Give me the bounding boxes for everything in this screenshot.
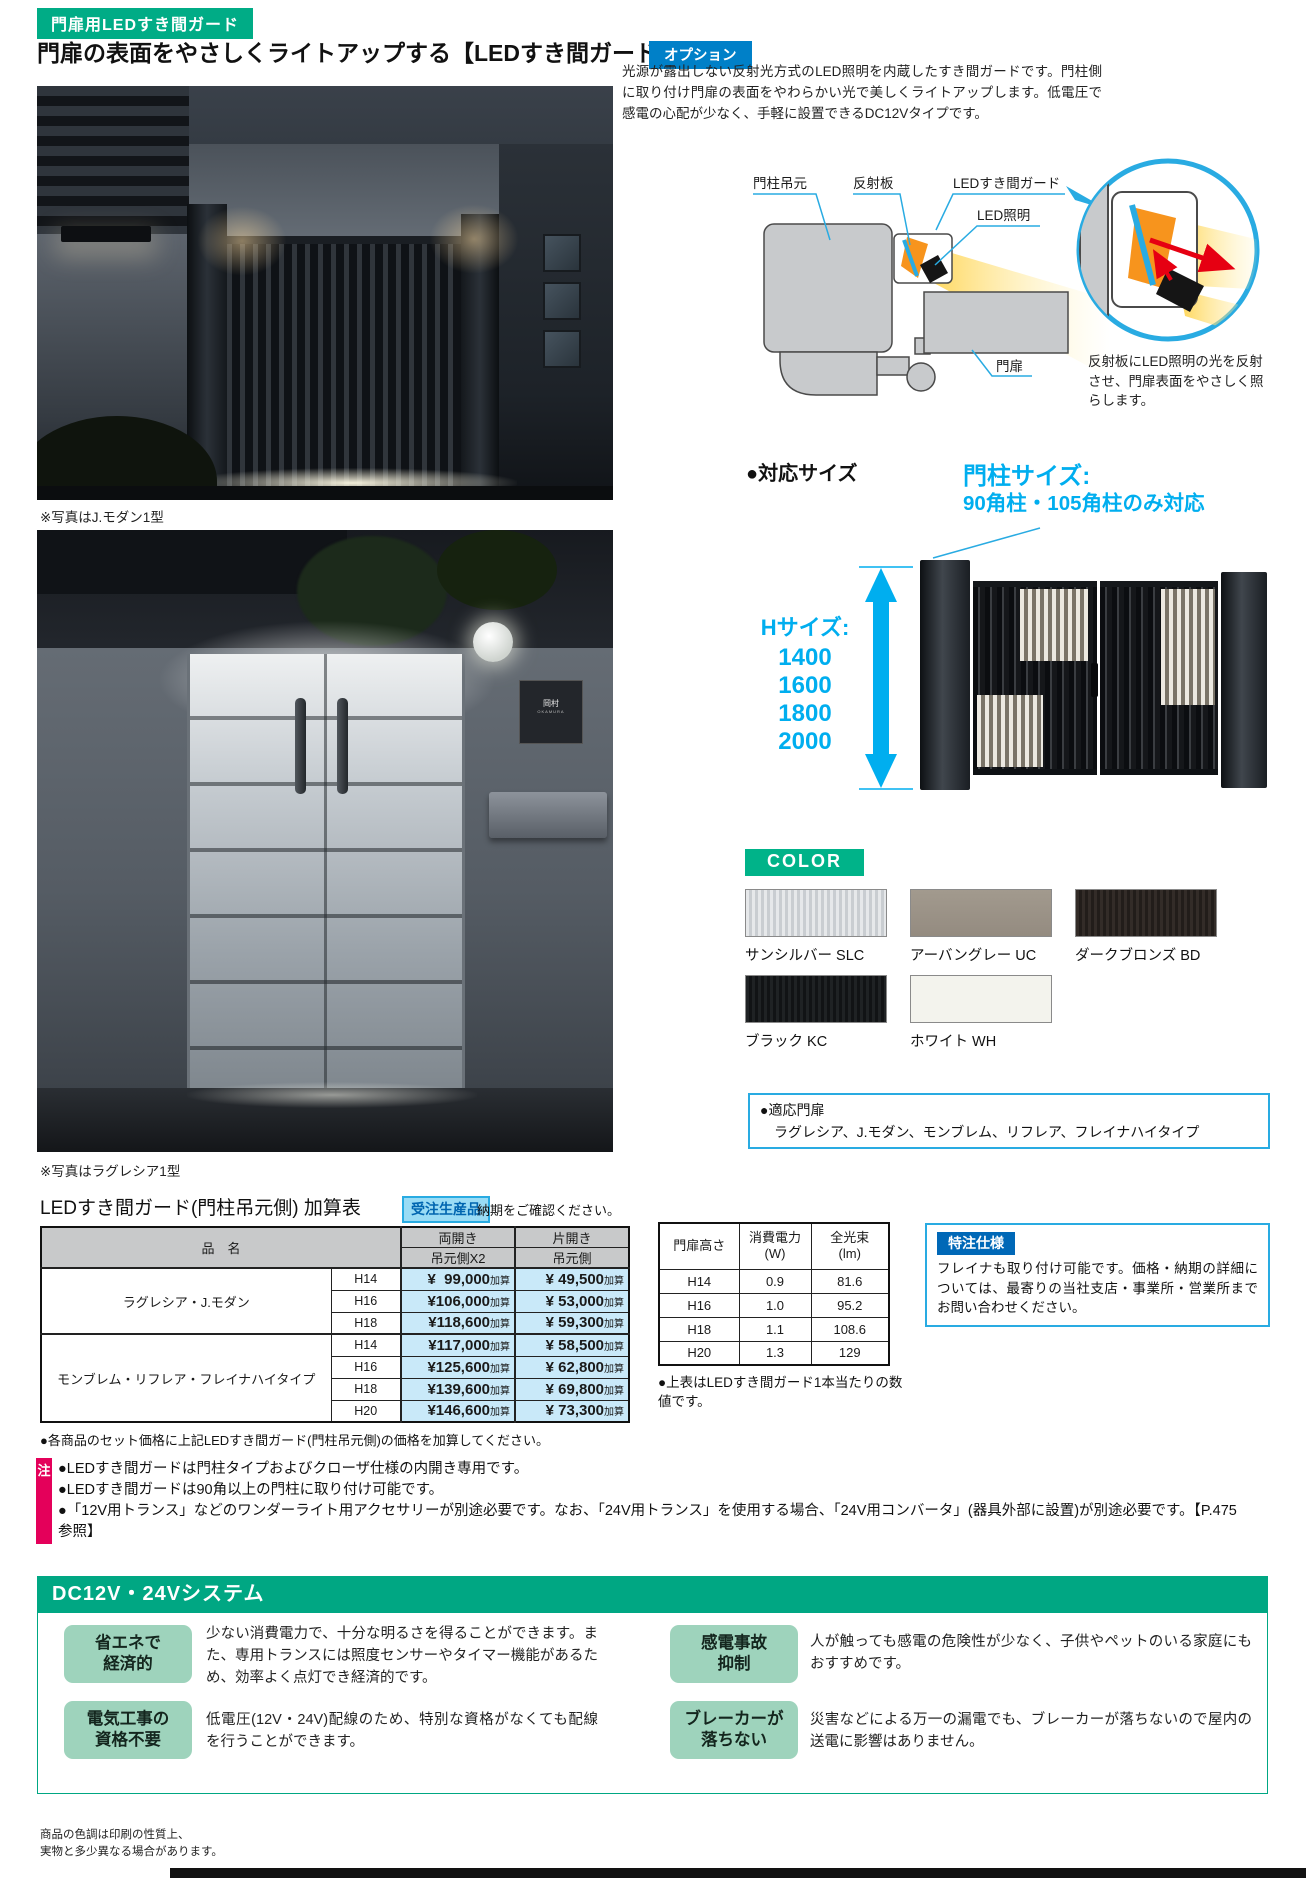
label-gate-post: 門柱吊元 <box>753 176 807 191</box>
swatch-label: ホワイト WH <box>910 1030 1052 1051</box>
col-single-header: 片開き <box>515 1227 629 1248</box>
feature-text-eco: 少ない消費電力で、十分な明るさを得ることができます。また、専用トランスには照度セ… <box>206 1623 598 1689</box>
spec-height: H14 <box>659 1269 739 1293</box>
color-section-badge: COLOR <box>745 849 864 876</box>
label-door: 門扉 <box>996 359 1023 374</box>
custom-spec-text: フレイナも取り付け可能です。価格・納期の詳細については、最寄りの当社支店・事業所… <box>937 1259 1258 1318</box>
price-cell: ¥117,000加算 <box>401 1334 515 1356</box>
gate-size-illustration <box>915 545 1273 800</box>
label-guard: LEDすき間ガード <box>953 176 1060 191</box>
price-suffix: 加算 <box>604 1342 624 1353</box>
photo-glass-block <box>543 330 581 368</box>
price-value: ¥ 53,000 <box>546 1293 604 1310</box>
spec-flux: 129 <box>811 1341 889 1365</box>
photo-under-gate-glow <box>187 1082 477 1108</box>
feature-text-breaker: 災害などによる万一の漏電でも、ブレーカーが落ちないので屋内の送電に影響はありませ… <box>810 1709 1252 1753</box>
intro-text: 光源が露出しない反射光方式のLED照明を内蔵したすき間ガードです。門柱側に取り付… <box>622 62 1102 125</box>
h-size-value: 1800 <box>736 700 874 728</box>
h-size-list: Hサイズ: 1400 1600 1800 2000 <box>736 610 874 756</box>
height-dimension-arrow <box>855 558 917 798</box>
color-swatches: サンシルバー SLC アーバングレー UC ダークブロンズ BD ブラック KC… <box>745 887 1275 1057</box>
swatch-label: サンシルバー SLC <box>745 944 887 965</box>
photo-warm-glow <box>429 204 519 274</box>
photo-round-lamp <box>473 622 513 662</box>
spec-height: H18 <box>659 1317 739 1341</box>
photo-glass-block <box>543 282 581 320</box>
nameplate-name: 岡村 <box>543 699 559 708</box>
photo-wall-lamp <box>61 226 151 242</box>
spec-col-height: 門扉高さ <box>659 1223 739 1269</box>
spec-table-note: ●上表はLEDすき間ガード1本当たりの数値です。 <box>658 1374 906 1412</box>
swatch-black: ブラック KC <box>745 975 887 1051</box>
height-cell: H16 <box>331 1290 401 1312</box>
height-cell: H18 <box>331 1312 401 1334</box>
swatch-color <box>910 889 1052 937</box>
price-table: 品 名 両開き 片開き 吊元側X2 吊元側 ラグレシア・J.モダン H14 ¥ … <box>40 1226 630 1423</box>
nameplate-roman: OKAMURA <box>520 709 582 714</box>
delivery-note: 納期をご確認ください。 <box>477 1200 620 1219</box>
illus-post-right <box>1221 572 1267 788</box>
price-suffix: 加算 <box>604 1298 624 1309</box>
photo-right-wall <box>499 144 613 500</box>
illus-light-block <box>1020 589 1088 661</box>
post-size-line1: 門柱サイズ: <box>963 463 1205 492</box>
price-suffix: 加算 <box>490 1319 510 1330</box>
price-cell: ¥139,600加算 <box>401 1378 515 1400</box>
dc-system-title: DC12V・24Vシステム <box>38 1577 1267 1613</box>
footer-disclaimer: 商品の色調は印刷の性質上、 実物と多少異なる場合があります。 <box>40 1827 223 1862</box>
price-value: ¥ 49,500 <box>546 1271 604 1288</box>
height-cell: H20 <box>331 1400 401 1422</box>
col-double-subheader: 吊元側X2 <box>401 1248 515 1269</box>
price-suffix: 加算 <box>604 1364 624 1375</box>
swatch-label: ブラック KC <box>745 1030 887 1051</box>
price-cell: ¥ 99,000加算 <box>401 1268 515 1290</box>
product-group-name: ラグレシア・J.モダン <box>41 1268 331 1334</box>
applicable-gates-box: ●適応門扉 ラグレシア、J.モダン、モンブレム、リフレア、フレイナハイタイプ <box>748 1093 1270 1149</box>
spec-table: 門扉高さ 消費電力(W) 全光束(lm) H14 0.9 81.6 H16 1.… <box>658 1222 890 1366</box>
price-cell: ¥ 53,000加算 <box>515 1290 629 1312</box>
page-title: 門扉の表面をやさしくライトアップする【LEDすき間ガード】 <box>37 34 681 68</box>
price-cell: ¥146,600加算 <box>401 1400 515 1422</box>
photo-nameplate: 岡村 OKAMURA <box>519 680 583 744</box>
price-cell: ¥ 49,500加算 <box>515 1268 629 1290</box>
gate-post-shape <box>764 224 892 352</box>
spec-height: H16 <box>659 1293 739 1317</box>
photo-gate-split <box>324 654 327 1110</box>
swatch-label: ダークブロンズ BD <box>1075 944 1217 965</box>
price-cell: ¥125,600加算 <box>401 1356 515 1378</box>
photo-mailbox <box>489 792 607 838</box>
price-value: ¥146,600 <box>427 1402 490 1419</box>
price-cell: ¥ 62,800加算 <box>515 1356 629 1378</box>
spec-power: 1.1 <box>739 1317 811 1341</box>
price-value: ¥ 62,800 <box>546 1359 604 1376</box>
applicable-list: ラグレシア、J.モダン、モンブレム、リフレア、フレイナハイタイプ <box>760 1122 1258 1142</box>
price-value: ¥ 59,300 <box>546 1314 604 1331</box>
height-cell: H14 <box>331 1268 401 1290</box>
height-cell: H16 <box>331 1356 401 1378</box>
swatch-sunsilver: サンシルバー SLC <box>745 889 887 965</box>
photo1-caption: ※写真はJ.モダン1型 <box>40 506 164 526</box>
spec-height: H20 <box>659 1341 739 1365</box>
h-size-value: 1600 <box>736 672 874 700</box>
price-suffix: 加算 <box>490 1276 510 1287</box>
swatch-color <box>745 975 887 1023</box>
footer-line2: 実物と多少異なる場合があります。 <box>40 1844 223 1861</box>
spec-flux: 95.2 <box>811 1293 889 1317</box>
label-led: LED照明 <box>977 208 1030 223</box>
spec-col-flux: 全光束(lm) <box>811 1223 889 1269</box>
feature-badge-eco: 省エネで経済的 <box>64 1625 192 1683</box>
photo-gate-handle <box>295 698 306 794</box>
price-suffix: 加算 <box>604 1386 624 1397</box>
photo-louver-fence <box>37 86 189 234</box>
col-product-header: 品 名 <box>41 1227 401 1268</box>
feature-badge-breaker: ブレーカーが落ちない <box>670 1701 798 1759</box>
custom-spec-badge: 特注仕様 <box>937 1232 1015 1255</box>
price-value: ¥ 99,000 <box>427 1271 490 1288</box>
swatch-color <box>1075 889 1217 937</box>
feature-badge-shock: 感電事故抑制 <box>670 1625 798 1683</box>
price-suffix: 加算 <box>490 1342 510 1353</box>
photo-foliage <box>437 530 557 610</box>
price-table-title: LEDすき間ガード(門柱吊元側) 加算表 <box>40 1193 361 1220</box>
swatch-color <box>910 975 1052 1023</box>
swatch-urbangray: アーバングレー UC <box>910 889 1052 965</box>
price-suffix: 加算 <box>604 1276 624 1287</box>
price-cell: ¥118,600加算 <box>401 1312 515 1334</box>
feature-text-shock: 人が触っても感電の危険性が少なく、子供やペットのいる家庭にもおすすめです。 <box>810 1631 1252 1675</box>
catalog-page: 門扉用LEDすき間ガード 門扉の表面をやさしくライトアップする【LEDすき間ガー… <box>0 0 1306 1878</box>
hinge-knuckle-shape <box>907 363 935 391</box>
note-item: ●LEDすき間ガードは門柱タイプおよびクローザ仕様の内開き専用です。 <box>58 1459 1248 1480</box>
swatch-label: アーバングレー UC <box>910 944 1052 965</box>
spec-power: 1.3 <box>739 1341 811 1365</box>
price-cell: ¥ 59,300加算 <box>515 1312 629 1334</box>
spec-col-power: 消費電力(W) <box>739 1223 811 1269</box>
dc-system-section: DC12V・24Vシステム 省エネで経済的 少ない消費電力で、十分な明るさを得る… <box>37 1576 1268 1794</box>
note-item: ●LEDすき間ガードは90角以上の門柱に取り付け可能です。 <box>58 1480 1248 1501</box>
price-cell: ¥ 69,800加算 <box>515 1378 629 1400</box>
post-size-note: 門柱サイズ: 90角柱・105角柱のみ対応 <box>963 463 1205 516</box>
page-bottom-bar <box>170 1868 1306 1878</box>
custom-spec-box: 特注仕様 フレイナも取り付け可能です。価格・納期の詳細については、最寄りの当社支… <box>925 1223 1270 1327</box>
illus-gate-handle <box>1091 663 1098 697</box>
col-double-header: 両開き <box>401 1227 515 1248</box>
h-size-value: 1400 <box>736 644 874 672</box>
feature-text-nolicense: 低電圧(12V・24V)配線のため、特別な資格がなくても配線を行うことができます… <box>206 1709 598 1753</box>
price-cell: ¥ 58,500加算 <box>515 1334 629 1356</box>
applicable-heading: ●適応門扉 <box>760 1100 1258 1120</box>
hinge-arm-shape <box>877 357 909 375</box>
note-badge: 注 <box>36 1458 52 1544</box>
height-cell: H18 <box>331 1378 401 1400</box>
swatch-color <box>745 889 887 937</box>
price-value: ¥106,000 <box>427 1293 490 1310</box>
spec-flux: 81.6 <box>811 1269 889 1293</box>
feature-badge-nolicense: 電気工事の資格不要 <box>64 1701 192 1759</box>
note-list: ●LEDすき間ガードは門柱タイプおよびクローザ仕様の内開き専用です。 ●LEDす… <box>58 1459 1248 1543</box>
swatch-darkbronze: ダークブロンズ BD <box>1075 889 1217 965</box>
diagram-caption: 反射板にLED照明の光を反射させ、門扉表面をやさしく照らします。 <box>1088 352 1274 411</box>
price-cell: ¥106,000加算 <box>401 1290 515 1312</box>
post-size-line2: 90角柱・105角柱のみ対応 <box>963 492 1205 517</box>
h-size-value: 2000 <box>736 728 874 756</box>
price-value: ¥125,600 <box>427 1359 490 1376</box>
gate-door-shape <box>924 292 1068 353</box>
swatch-white: ホワイト WH <box>910 975 1052 1051</box>
spec-flux: 108.6 <box>811 1317 889 1341</box>
spec-power: 0.9 <box>739 1269 811 1293</box>
price-suffix: 加算 <box>490 1364 510 1375</box>
price-value: ¥ 58,500 <box>546 1337 604 1354</box>
price-suffix: 加算 <box>490 1386 510 1397</box>
price-value: ¥118,600 <box>428 1314 490 1331</box>
h-size-label: Hサイズ: <box>736 610 874 642</box>
price-value: ¥139,600 <box>427 1381 490 1398</box>
note-item: ●「12V用トランス」などのワンダーライト用アクセサリーが別途必要です。なお、「… <box>58 1501 1248 1543</box>
illus-post-left <box>920 560 970 790</box>
illus-light-block <box>977 695 1043 767</box>
label-reflector: 反射板 <box>853 176 894 191</box>
col-single-subheader: 吊元側 <box>515 1248 629 1269</box>
spec-power: 1.0 <box>739 1293 811 1317</box>
hinge-body-shape <box>780 352 877 395</box>
price-value: ¥ 69,800 <box>546 1381 604 1398</box>
price-table-note: ●各商品のセット価格に上記LEDすき間ガード(門柱吊元側)の価格を加算してくださ… <box>40 1430 549 1449</box>
product-group-name: モンブレム・リフレア・フレイナハイタイプ <box>41 1334 331 1422</box>
price-suffix: 加算 <box>604 1407 624 1418</box>
night-photo-jmodern <box>37 86 613 500</box>
photo-ground <box>37 486 613 500</box>
night-photo-lagrecia: 岡村 OKAMURA <box>37 530 613 1152</box>
photo-warm-glow <box>197 206 287 276</box>
size-section-heading: ●対応サイズ <box>746 457 857 486</box>
height-cell: H14 <box>331 1334 401 1356</box>
price-suffix: 加算 <box>604 1319 624 1330</box>
photo-gate-handle <box>337 698 348 794</box>
illus-light-block <box>1161 589 1215 705</box>
photo-glass-block <box>543 234 581 272</box>
footer-line1: 商品の色調は印刷の性質上、 <box>40 1827 223 1844</box>
price-cell: ¥ 73,300加算 <box>515 1400 629 1422</box>
price-suffix: 加算 <box>490 1407 510 1418</box>
price-value: ¥117,000 <box>428 1337 490 1354</box>
price-suffix: 加算 <box>490 1298 510 1309</box>
photo2-caption: ※写真はラグレシア1型 <box>40 1160 180 1180</box>
price-value: ¥ 73,300 <box>546 1402 604 1419</box>
